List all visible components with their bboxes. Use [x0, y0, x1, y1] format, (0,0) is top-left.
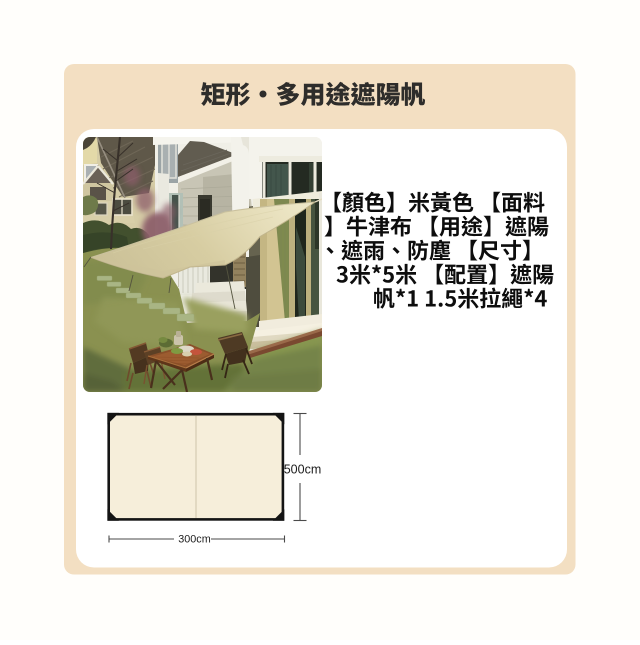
svg-text:500cm: 500cm: [284, 463, 322, 477]
svg-text:300cm: 300cm: [178, 534, 210, 546]
